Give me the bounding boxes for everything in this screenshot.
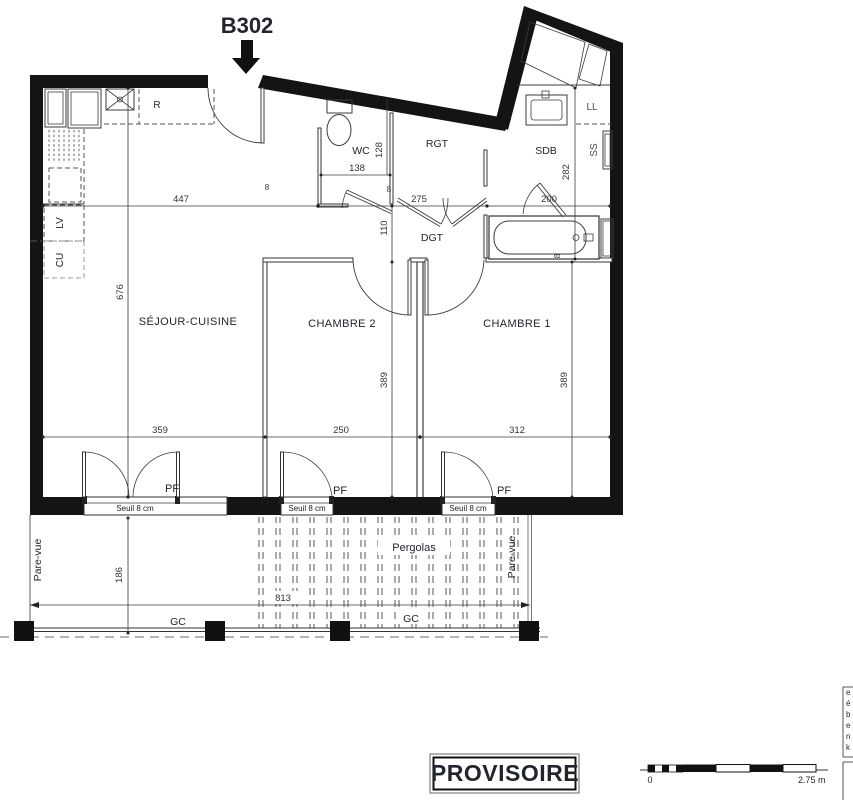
dim-hall-width: 275 [411,194,427,205]
towel-dryer-label: SS [589,143,600,157]
dim-wc-width: 138 [349,163,365,174]
wc-door [342,190,392,214]
clipped-note-1: e [846,688,851,697]
dim-ch1-height: 389 [559,372,570,388]
pf-label-1: PF [165,483,179,495]
seuil-label-2: Seuil 8 cm [288,504,326,513]
pergolas-label: Pergolas [392,542,436,554]
dim-ch2-width: 250 [333,425,349,436]
dim-small-tub: 8 [553,253,562,258]
washbasin-icon [526,91,567,125]
clipped-note-3: b [846,710,851,719]
pare-vue-left-label: Pare-vue [32,539,44,582]
kitchen-fixtures: R LV CU [30,89,214,278]
hob-label: CU [55,253,66,267]
dishwasher-label: LV [55,217,66,229]
pf-label-3: PF [497,485,511,497]
dim-terrace-height: 186 [114,567,125,583]
floor-plan-page: B302 [0,0,853,800]
wc-fixtures [327,100,352,146]
dim-small-left: 8 [265,183,270,192]
washer-label: LL [586,102,598,113]
entrance-door [208,88,264,143]
dim-pf-sejour: 359 [152,425,168,436]
unit-callout: B302 [221,13,274,74]
provisoire-label: PROVISOIRE [431,760,579,786]
scale-start: 0 [647,775,652,785]
unit-label: B302 [221,13,274,38]
bathtub-icon [489,216,599,259]
dim-hall-height: 110 [379,220,390,235]
room-rgt: RGT [426,138,449,150]
worktop-hatch [49,130,79,163]
bedroom2-door [353,260,411,315]
pare-vue-right-label: Pare-vue [506,536,518,579]
dim-sdb-height: 282 [561,164,572,180]
dim-ch1-width: 312 [509,425,525,436]
fridge-label: R [153,100,160,111]
clipped-title-block: e é b e n k [843,687,853,800]
dim-wc-height: 128 [374,142,385,158]
dim-sejour-width: 447 [173,194,189,205]
gc-label-right: GC [403,613,419,625]
sink-icon [106,89,134,110]
scale-end: 2.75 m [798,775,826,785]
interior-walls [263,113,612,497]
bedroom1-door [425,260,484,315]
terrace: Pergolas Pare-vue Pare-vue GC GC [0,515,548,641]
clipped-note-4: e [846,721,851,730]
room-dgt: DGT [421,232,444,244]
pergola-hatch [258,517,528,628]
dim-sdb-width: 200 [541,194,557,205]
room-sejour: SÉJOUR-CUISINE [139,315,238,328]
clipped-note-5: n [846,732,850,741]
clipped-note-2: é [846,699,851,708]
dim-sejour-height: 676 [115,284,126,300]
seuil-label-1: Seuil 8 cm [116,504,154,513]
french-windows: Seuil 8 cm PF Seuil 8 cm PF Seuil 8 cm P… [82,452,511,515]
scale-bar: 0 2.75 m [640,765,828,786]
room-chambre2: CHAMBRE 2 [308,318,376,330]
room-chambre1: CHAMBRE 1 [483,318,551,330]
provisoire-stamp: PROVISOIRE [430,754,579,793]
gc-label-left: GC [170,616,186,628]
room-wc: WC [352,145,370,157]
seuil-label-3: Seuil 8 cm [449,504,487,513]
floor-plan-drawing: B302 [0,0,853,800]
dim-ch2-height: 389 [379,372,390,388]
entrance-arrow-icon [232,40,260,74]
dim-pergola-width: 813 [275,593,291,604]
dim-small-right: 8 [387,185,392,194]
pf-label-2: PF [333,485,347,497]
room-sdb: SDB [535,145,557,157]
clipped-note-6: k [846,743,851,752]
